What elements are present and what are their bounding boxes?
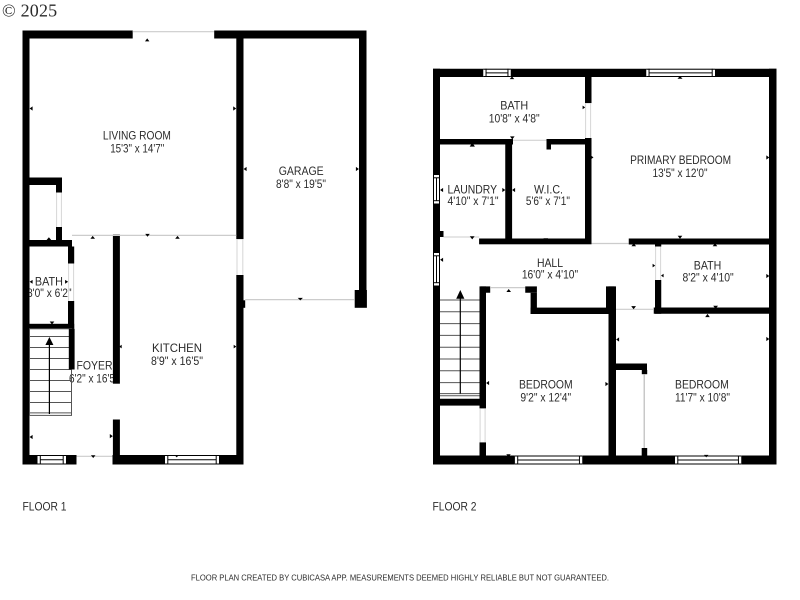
svg-text:5'6" x 7'1": 5'6" x 7'1" [526,194,570,208]
svg-text:8'0" x 6'2": 8'0" x 6'2" [27,286,72,300]
svg-text:FOYER: FOYER [77,359,113,373]
svg-text:© 2025: © 2025 [2,0,57,20]
svg-text:GARAGE: GARAGE [279,164,324,178]
svg-text:13'5" x 12'0": 13'5" x 12'0" [653,166,708,180]
svg-text:15'3" x 14'7": 15'3" x 14'7" [110,142,164,156]
svg-text:KITCHEN: KITCHEN [152,341,202,355]
svg-text:FLOOR 2: FLOOR 2 [433,499,477,513]
svg-text:8'9" x 16'5": 8'9" x 16'5" [151,354,203,368]
svg-text:4'10" x 7'1": 4'10" x 7'1" [448,194,499,208]
svg-text:8'8" x 19'5": 8'8" x 19'5" [276,177,326,191]
svg-text:LIVING ROOM: LIVING ROOM [103,129,171,143]
svg-text:11'7" x 10'8": 11'7" x 10'8" [675,390,730,404]
svg-text:FLOOR 1: FLOOR 1 [23,499,67,513]
svg-text:10'8" x 4'8": 10'8" x 4'8" [489,111,540,125]
svg-text:6'2" x 16'5": 6'2" x 16'5" [69,372,119,386]
svg-text:8'2" x 4'10": 8'2" x 4'10" [683,270,734,284]
svg-text:16'0" x 4'10": 16'0" x 4'10" [522,268,578,282]
svg-text:9'2" x 12'4": 9'2" x 12'4" [520,390,571,404]
svg-text:FLOOR PLAN CREATED BY CUBICASA: FLOOR PLAN CREATED BY CUBICASA APP. MEAS… [191,573,609,582]
